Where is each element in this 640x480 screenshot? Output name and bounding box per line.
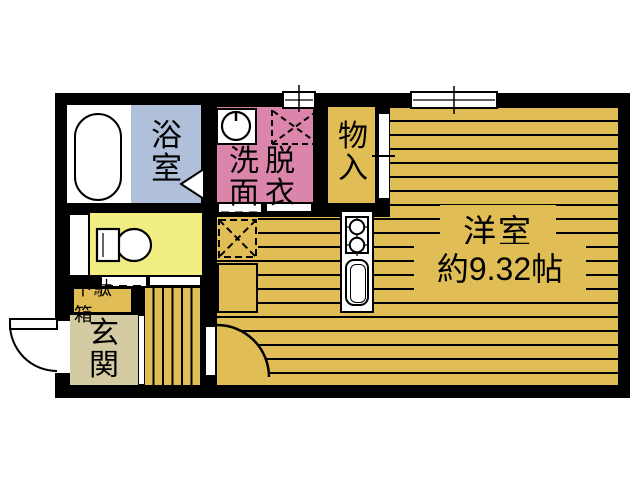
entrance-door-leaf: [9, 318, 58, 330]
closet-sliding-door: [377, 112, 391, 200]
washroom-label-left: 洗面: [228, 146, 260, 210]
entrance-label: 玄関: [88, 318, 120, 382]
bathroom-label: 浴室: [150, 119, 183, 185]
sink-basin: [350, 264, 366, 303]
western-room-size: 約9.32帖: [414, 244, 586, 290]
floor-plan: 下駄箱: [0, 0, 640, 480]
bathtub: [74, 113, 122, 201]
pipe-space: [68, 213, 90, 277]
entrance-door-swing: [10, 324, 57, 371]
entrance-step: [138, 315, 145, 385]
toilet-room: [90, 213, 202, 275]
stove-burner-box: [345, 216, 369, 254]
counter-space: [217, 263, 258, 313]
storage-label: 物入: [337, 121, 369, 185]
kitchen-sink: [345, 259, 369, 306]
washroom-label-right: 脱衣: [264, 146, 296, 210]
washing-machine-space: [216, 108, 257, 145]
toilet-sliding-door-pocket: [148, 275, 202, 287]
room-door-leaf: [204, 325, 217, 377]
refrigerator-space: [217, 218, 258, 259]
shoe-cabinet: 下駄箱: [72, 287, 133, 314]
hallway-floor: [145, 288, 202, 385]
